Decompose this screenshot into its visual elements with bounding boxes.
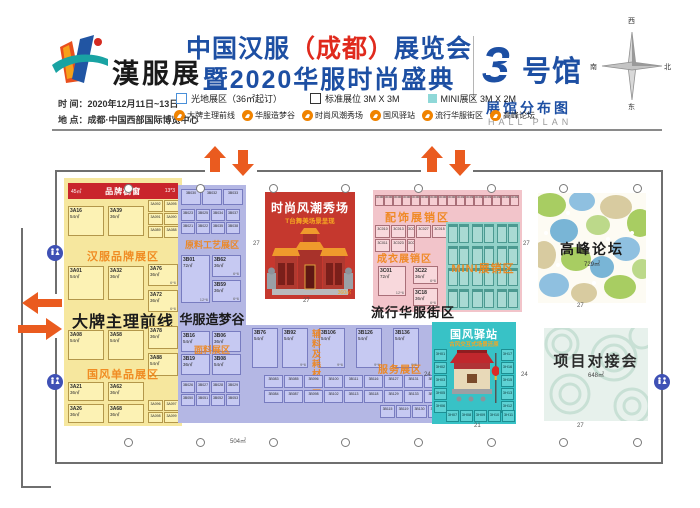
booth-pair-group: 3A0923A0953A0913A0903A0893A088 xyxy=(148,200,179,238)
booth-cell: 3H01 xyxy=(434,349,447,361)
brand-window-banner: 45㎡ 品牌橱窗 13*3 xyxy=(68,183,178,199)
booth-column: 3H173H163H153H133H12 xyxy=(501,349,514,413)
booth-cell: 3B127 xyxy=(384,375,403,388)
stage-subtitle: T台舞美场景呈现 xyxy=(265,215,355,225)
booth-group: 3A7636㎡6*63A7236㎡6*6 xyxy=(148,264,178,312)
zone-marker-icon xyxy=(174,110,185,121)
hall-word: 号馆 xyxy=(522,48,582,90)
zone-popular-huafu-street: 3C0013C0023C0033C0043C0053C0063C0073C008… xyxy=(373,190,522,312)
booth-cell: 3B116 xyxy=(364,375,383,388)
mini-booth-pair xyxy=(448,224,469,243)
pillar xyxy=(414,184,423,193)
pillar xyxy=(124,438,133,447)
booth-cell: 3C027 xyxy=(416,225,431,238)
booth-strip: 3C0013C0023C0033C0043C0053C0063C0073C008… xyxy=(375,195,519,206)
hall-wall xyxy=(473,170,663,172)
entrance-up-arrow-icon xyxy=(421,146,443,177)
booth-cell: 3A2636㎡ xyxy=(68,404,104,423)
booth-cell: 3A3936㎡ xyxy=(108,206,144,236)
booth-cell: 3B021 xyxy=(181,222,195,234)
restroom-icon xyxy=(47,374,63,390)
booth-cell: 3C007 xyxy=(429,195,438,206)
booth-cell: 3C008 xyxy=(438,195,447,206)
aisle-dimension-label: 27 xyxy=(523,241,530,247)
booth-pair-group: 3A0963A0973A0983A099 xyxy=(148,400,179,423)
booth-cell: 3C2236㎡6*6 xyxy=(413,266,438,284)
booth-cell: 3C035 xyxy=(501,195,510,206)
meeting-area-size: 648㎡ xyxy=(544,370,648,379)
exhibition-hall-plan-page: 漢服展 中国汉服（成都）展览会 暨2020华服时尚盛典 时 间：2020年12月… xyxy=(0,0,700,508)
booth-cell: 3H03 xyxy=(434,375,447,387)
mini-booth-pair xyxy=(497,224,518,243)
booth-pair-group: 3C0103C0133C0263C0273C0153C0113C0233C025 xyxy=(375,225,447,252)
booth-cell: 3B052 xyxy=(211,394,225,406)
booth-group: 3C0172㎡12*6 xyxy=(378,266,406,296)
booth-cell: 3C031 xyxy=(465,195,474,206)
booth-cell: 3B9254㎡9*6 xyxy=(282,328,308,368)
booth-cell: 3C036 xyxy=(510,195,519,206)
aisle-dimension-label: 504㎡ xyxy=(230,436,246,445)
booth-pair-group: 3B0263B0273B0283B0293B0503B0513B0523B053 xyxy=(181,381,240,406)
zone-label-popular-street: 流行华服街区 xyxy=(371,302,455,321)
forum-area-size: 729㎡ xyxy=(538,259,646,268)
booth-cell: 3B085 xyxy=(284,375,303,388)
zone-brand-frontline: 45㎡ 品牌橱窗 13*3 3A1654㎡3A3936㎡ 3A0923A0953… xyxy=(64,178,182,426)
booth-cell: 3B084 xyxy=(264,390,283,403)
booth-group: 3A1654㎡3A3936㎡ xyxy=(68,206,144,236)
booth-group: 3B6236㎡6*63B5936㎡6*6 xyxy=(212,255,241,302)
booth-cell: 3B026 xyxy=(181,381,195,393)
mini-booth-pair xyxy=(472,289,493,308)
zone-legend: 大牌主理前线 华服造梦谷 时尚风潮秀场 国风驿站 流行华服街区 高峰论坛 xyxy=(174,110,535,121)
booth-cell: 3B035 xyxy=(211,222,225,234)
aisle-dimension-label: 27 xyxy=(253,241,260,247)
zone-marker-icon xyxy=(302,110,313,121)
pillar xyxy=(633,438,642,447)
aisle-dimension-label: 27 xyxy=(577,303,584,309)
zone-marker-icon xyxy=(490,110,501,121)
booth-cell: 3A091 xyxy=(148,213,163,225)
booth-group: 3B0172㎡12*6 xyxy=(181,255,210,303)
compass-south: 南 xyxy=(590,62,597,72)
booth-cell: 3B6236㎡6*6 xyxy=(212,255,241,277)
zone-huafu-dream-valley: 3B0303B0323B033 3B0233B0253B0343B0373B02… xyxy=(178,185,246,423)
pillar xyxy=(269,438,278,447)
booth-cell: 3B050 xyxy=(181,394,195,406)
zone-label-summit-forum: 高峰论坛 xyxy=(538,239,646,259)
zone-watermark: 面料展区 xyxy=(178,343,246,356)
pillar xyxy=(487,438,496,447)
hall-wall xyxy=(55,462,663,464)
entrance-up-arrow-icon xyxy=(204,146,226,177)
booth-cell: 3A092 xyxy=(148,200,163,212)
standard-booth-swatch xyxy=(310,93,321,104)
legend-zone-item: 大牌主理前线 xyxy=(174,110,235,121)
aisle-dimension-label: 24 xyxy=(521,372,528,378)
booth-group: 3A0854㎡3A5854㎡ xyxy=(68,330,144,360)
booth-cell: 3B032 xyxy=(202,189,222,205)
booth-cell: 3B130 xyxy=(412,405,427,418)
booth-column: 3H013H023H033H053H06 xyxy=(434,349,447,413)
booth-cell: 3B037 xyxy=(226,209,240,221)
post-station-subtitle: 古风交互式场景还原 xyxy=(432,340,516,348)
booth-cell: 3B096 xyxy=(304,375,323,388)
restroom-icon xyxy=(654,374,670,390)
pillar xyxy=(124,184,133,193)
mini-booth-zone: MINI展销区 xyxy=(446,222,520,310)
page-title: 中国汉服（成都）展览会 暨2020华服时尚盛典 xyxy=(183,34,475,96)
pillar xyxy=(341,184,350,193)
booth-cell: 3B087 xyxy=(284,390,303,403)
booth-cell: 3A097 xyxy=(164,400,179,411)
booth-group: 3C2236㎡6*63C1836㎡6*6 xyxy=(413,266,438,306)
booth-cell: 3A1654㎡ xyxy=(68,206,104,236)
booth-cell: 3B051 xyxy=(196,394,210,406)
pillar xyxy=(414,438,423,447)
zone-watermark: 配饰展销区 xyxy=(385,209,450,225)
booth-cell: 3B0854㎡ xyxy=(212,354,241,375)
booth-cell: 3A099 xyxy=(164,412,179,423)
legend-open-area: 光地展区（36㎡起订） xyxy=(176,92,282,105)
entrance-down-arrow-icon xyxy=(449,150,471,181)
teahouse-illustration xyxy=(449,349,499,412)
booth-cell: 3B038 xyxy=(226,222,240,234)
booth-cell: 3B033 xyxy=(223,189,243,205)
booth-cell: 3C0172㎡12*6 xyxy=(378,266,406,296)
booth-cell: 3B111 xyxy=(344,375,363,388)
restroom-icon xyxy=(47,245,63,261)
booth-cell: 3C034 xyxy=(492,195,501,206)
booth-cell: 3B131 xyxy=(404,375,423,388)
pillar xyxy=(559,184,568,193)
booth-cell: 3A095 xyxy=(164,200,179,212)
pillar xyxy=(559,438,568,447)
booth-cell: 3A0854㎡ xyxy=(68,330,104,360)
pillar xyxy=(341,438,350,447)
compass-north: 北 xyxy=(664,62,671,72)
booth-cell: 3C003 xyxy=(393,195,402,206)
corridor-wall xyxy=(21,228,23,487)
booth-cell: 3A096 xyxy=(148,400,163,411)
booth-cell: 3C032 xyxy=(474,195,483,206)
zone-label-dream-valley: 华服造梦谷 xyxy=(178,309,246,328)
pillar xyxy=(269,184,278,193)
aisle-dimension-label: 27 xyxy=(577,423,584,429)
booth-cell: 3C030 xyxy=(456,195,465,206)
booth-cell: 3B133 xyxy=(404,390,423,403)
booth-cell: 3C002 xyxy=(384,195,393,206)
booth-group: 3A0154㎡3A3236㎡ xyxy=(68,266,144,300)
hall-wall xyxy=(55,170,205,172)
legend-standard-booth: 标准展位 3M X 3M xyxy=(310,92,400,105)
zone-label-matchmaking: 项目对接会 xyxy=(544,350,648,371)
booth-cell: 3H17 xyxy=(501,349,514,361)
aisle-dimension-label: 21 xyxy=(474,423,481,429)
booth-cell: 3B027 xyxy=(196,381,210,393)
zone-marker-icon xyxy=(242,110,253,121)
pillar xyxy=(196,184,205,193)
booth-cell: 3B034 xyxy=(211,209,225,221)
header-divider xyxy=(473,36,474,100)
mini-booth-swatch xyxy=(428,94,437,103)
entrance-down-arrow-icon xyxy=(232,150,254,181)
booth-cell: 3C026 xyxy=(407,225,415,238)
booth-cell: 3A089 xyxy=(148,226,163,238)
booth-cell: 3B083 xyxy=(264,375,283,388)
zone-watermark: MINI展销区 xyxy=(446,260,520,276)
header-rule xyxy=(52,129,662,131)
stage-area-size: 360㎡ xyxy=(338,289,351,296)
legend-mini-booth: MINI展区 3M X 2M xyxy=(428,92,517,105)
booth-cell: 3C015 xyxy=(432,225,447,238)
booth-cell: 3H11 xyxy=(502,410,515,422)
mini-booth-pair xyxy=(497,289,518,308)
booth-cell: 3B7654㎡ xyxy=(252,328,278,368)
booth-cell: 3A088 xyxy=(164,226,179,238)
booth-cell: 3A6236㎡ xyxy=(108,382,144,401)
booth-cell: 3B029 xyxy=(226,381,240,393)
booth-cell: 3C004 xyxy=(402,195,411,206)
booth-cell: 3B098 xyxy=(304,390,323,403)
booth-cell: 3H16 xyxy=(501,362,514,374)
booth-pair-group: 3B0233B0253B0343B0373B0213B0223B0353B038 xyxy=(181,209,240,234)
booth-cell: 3A6836㎡ xyxy=(108,404,144,423)
aisle-dimension-label: 27 xyxy=(303,298,310,304)
hall-number: 3 xyxy=(482,36,510,94)
booth-cell: 3C010 xyxy=(375,225,390,238)
hall-wall xyxy=(661,170,663,464)
zone-watermark: 成衣展销区 xyxy=(377,250,432,265)
booth-cell: 3H15 xyxy=(501,375,514,387)
open-area-swatch xyxy=(176,93,187,104)
booth-cell: 3B115 xyxy=(380,405,395,418)
booth-cell: 3C009 xyxy=(447,195,456,206)
compass-east: 东 xyxy=(628,102,635,112)
aisle-dimension-label: 24 xyxy=(424,372,431,378)
booth-cell: 3A7836㎡ xyxy=(148,326,178,349)
corridor-wall xyxy=(21,486,51,488)
booth-cell: 3A2136㎡ xyxy=(68,382,104,401)
pillar xyxy=(196,438,205,447)
booth-cell: 3B100 xyxy=(324,375,343,388)
legend-zone-item: 国风驿站 xyxy=(370,110,415,121)
zone-summit-forum: 高峰论坛 729㎡ xyxy=(538,193,646,303)
booth-cell: 3B028 xyxy=(211,381,225,393)
booth-cell: 3C001 xyxy=(375,195,384,206)
booth-cell: 3B118 xyxy=(364,390,383,403)
booth-cell: 3B053 xyxy=(226,394,240,406)
zone-watermark: 汉服品牌展区 xyxy=(64,248,182,264)
compass-icon xyxy=(596,24,668,108)
booth-cell: 3B025 xyxy=(196,209,210,221)
booth-cell: 3C013 xyxy=(391,225,406,238)
hall-wall xyxy=(55,170,57,294)
zone-watermark: 服务展区 xyxy=(378,361,422,376)
expo-logo xyxy=(50,33,110,91)
zone-guofeng-post-station: 国风驿站 古风交互式场景还原 3H013H023H033H053H06 3H17… xyxy=(432,322,516,424)
zone-project-matchmaking: 项目对接会 648㎡ xyxy=(544,328,648,421)
zone-watermark: 国风单品展区 xyxy=(64,366,182,382)
booth-cell: 3H05 xyxy=(434,388,447,400)
legend-zone-item: 流行华服街区 xyxy=(422,110,483,121)
booth-cell: 3A090 xyxy=(164,213,179,225)
zone-watermark: 原料工艺展区 xyxy=(178,238,246,251)
hall-wall xyxy=(55,338,57,464)
booth-cell: 3B022 xyxy=(196,222,210,234)
entrance-right-arrow-icon xyxy=(18,318,62,345)
booth-cell: 3B119 xyxy=(396,405,411,418)
booth-cell: 3H02 xyxy=(434,362,447,374)
booth-cell: 3C033 xyxy=(483,195,492,206)
booth-cell: 3B0172㎡12*6 xyxy=(181,255,210,303)
pillar xyxy=(633,184,642,193)
hall-wall xyxy=(257,170,421,172)
booth-cell: 3A0154㎡ xyxy=(68,266,104,300)
booth-group: 3B7654㎡ xyxy=(252,328,278,368)
booth-cell: 3A3236㎡ xyxy=(108,266,144,300)
legend-zone-item: 时尚风潮秀场 xyxy=(302,110,363,121)
compass-west: 西 xyxy=(628,16,635,26)
booth-cell: 3A5854㎡ xyxy=(108,330,144,360)
booth-cell: 3B1936㎡ xyxy=(181,354,210,375)
entrance-left-arrow-icon xyxy=(22,292,62,319)
booth-cell: 3B023 xyxy=(181,209,195,221)
booth-cell: 3A098 xyxy=(148,412,163,423)
booth-cell: 3B102 xyxy=(324,390,343,403)
legend-zone-item: 华服造梦谷 xyxy=(242,110,295,121)
booth-cell: 3B129 xyxy=(384,390,403,403)
pillar xyxy=(487,184,496,193)
booth-cell: 3H13 xyxy=(501,388,514,400)
booth-cell: 3A7636㎡6*6 xyxy=(148,264,178,286)
legend-zone-item: 高峰论坛 xyxy=(490,110,535,121)
booth-pair-group: 3B0303B0323B033 xyxy=(181,189,243,205)
booth-cell: 3B5936㎡6*6 xyxy=(212,280,241,302)
mini-booth-pair xyxy=(472,224,493,243)
booth-cell: 3C006 xyxy=(420,195,429,206)
zone-marker-icon xyxy=(370,110,381,121)
booth-cell: 3B113 xyxy=(344,390,363,403)
booth-group: 3A2136㎡3A6236㎡3A2636㎡3A6836㎡ xyxy=(68,382,144,423)
title-line1: 中国汉服（成都）展览会 xyxy=(183,34,475,65)
hall-number-stripe xyxy=(486,72,526,75)
zone-fashion-show-stage: 时尚风潮秀场 T台舞美场景呈现 xyxy=(265,192,355,299)
stage-title: 时尚风潮秀场 xyxy=(265,199,355,216)
booth-type-legend: 光地展区（36㎡起订） 标准展位 3M X 3M MINI展区 3M X 2M xyxy=(176,92,516,105)
booth-cell: 3C005 xyxy=(411,195,420,206)
zone-marker-icon xyxy=(422,110,433,121)
